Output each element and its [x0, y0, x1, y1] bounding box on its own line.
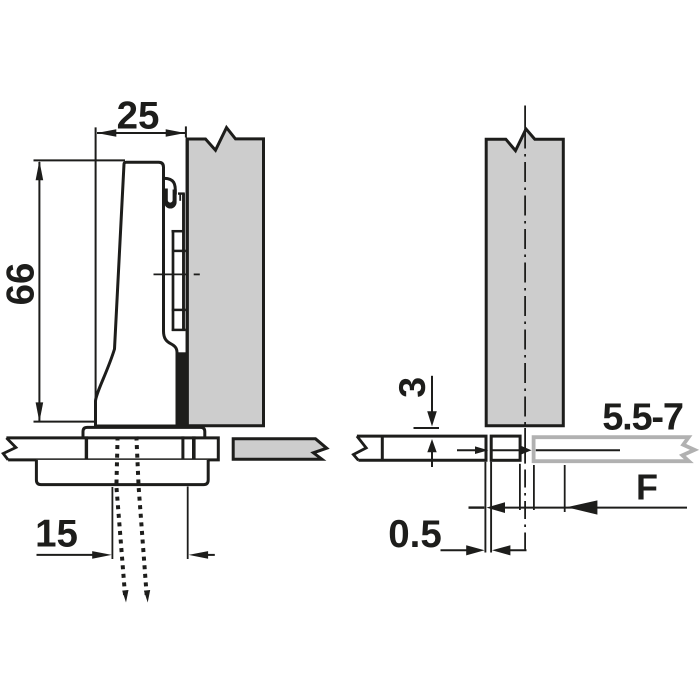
svg-text:3: 3 — [391, 377, 433, 398]
svg-text:15: 15 — [35, 513, 78, 556]
svg-text:66: 66 — [0, 263, 43, 306]
svg-text:25: 25 — [117, 94, 160, 137]
svg-text:5.5-7: 5.5-7 — [602, 397, 683, 439]
svg-text:F: F — [636, 466, 658, 507]
svg-text:0.5: 0.5 — [388, 513, 442, 556]
